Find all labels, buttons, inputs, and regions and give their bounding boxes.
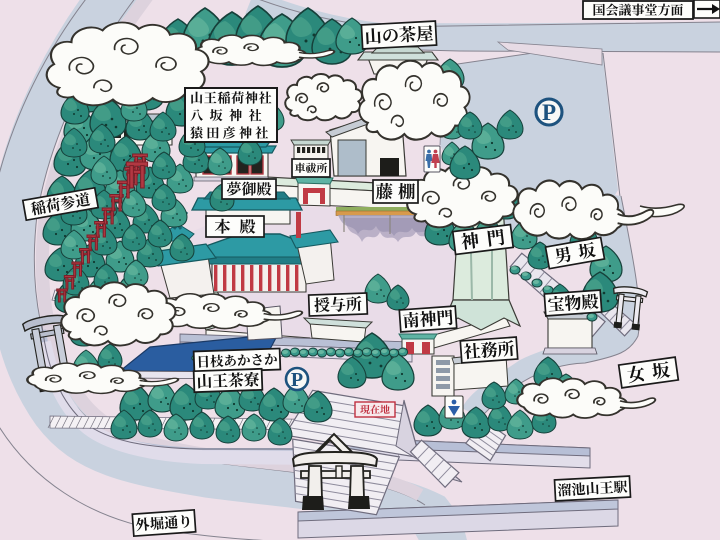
svg-text:P: P	[291, 369, 303, 391]
svg-text:P: P	[542, 100, 556, 125]
